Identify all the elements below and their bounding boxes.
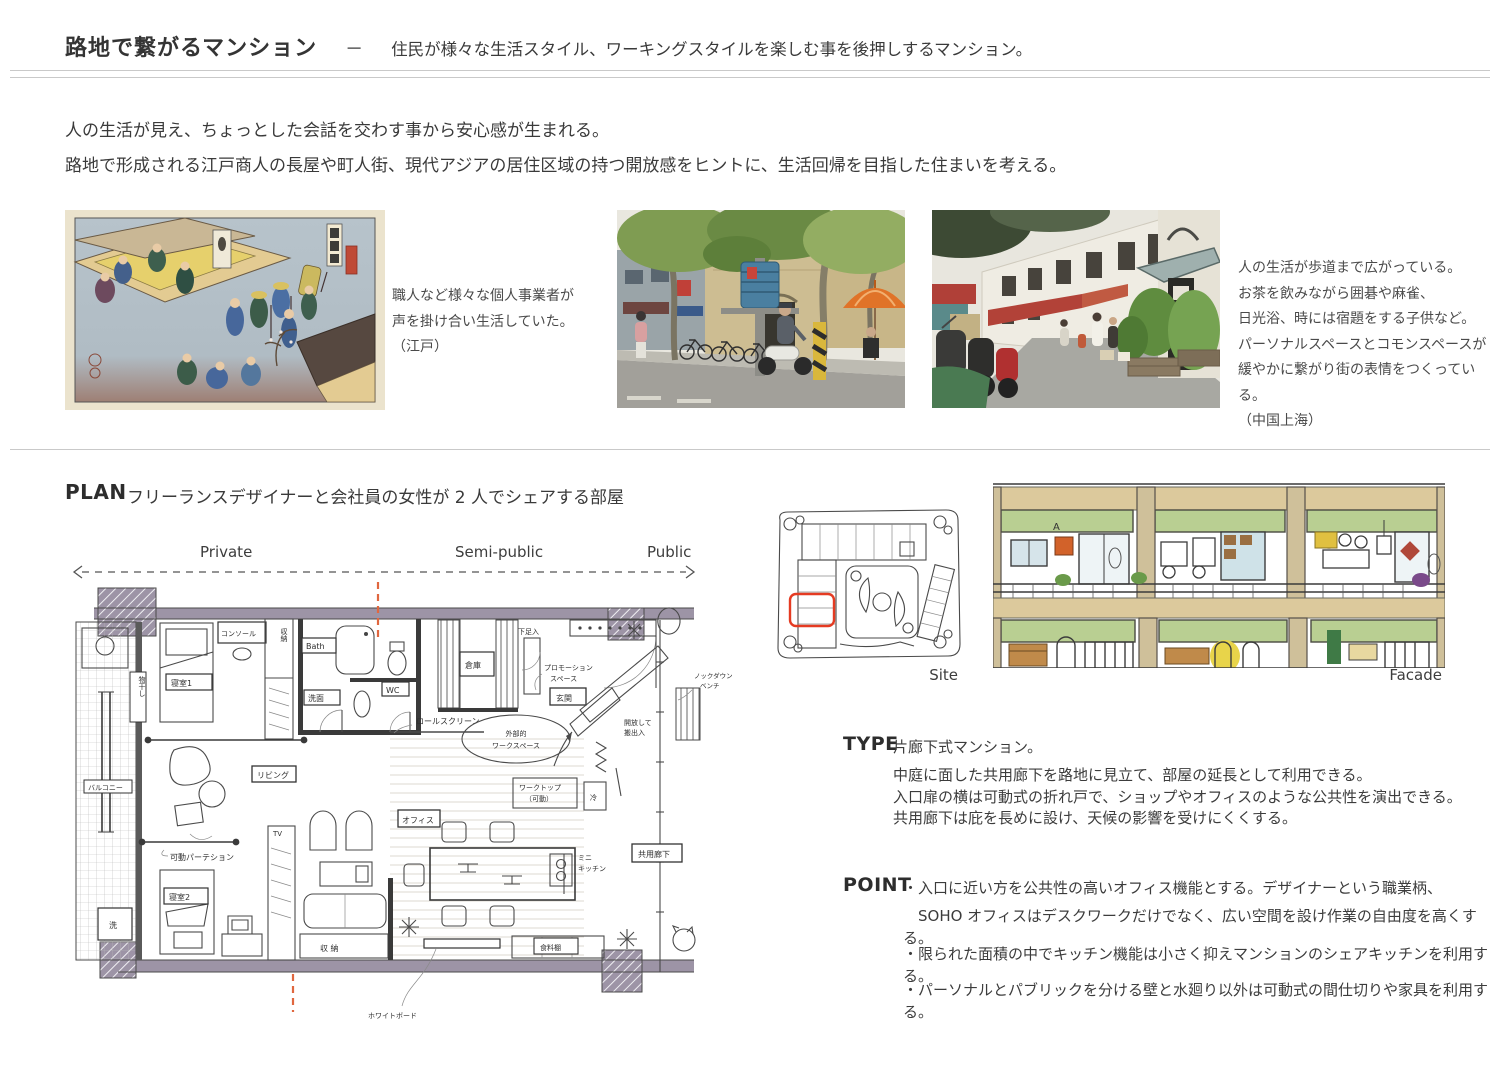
ukiyoe-edo-image — [65, 210, 385, 410]
storeroom-shelf — [438, 620, 460, 708]
point-heading: POINT — [843, 874, 912, 896]
storeroom-shelf — [496, 620, 518, 708]
column — [602, 950, 642, 992]
plan-label-bedroom1: 寝室1 — [171, 678, 192, 688]
armchair — [346, 811, 372, 850]
round-table — [199, 781, 225, 807]
shanghai-caption-line-3: 日光浴、時には宿題をする子供など。 — [1238, 307, 1500, 333]
plan-label-promotion-1: プロモーション — [544, 664, 593, 672]
zone-label-semipublic: Semi-public — [455, 543, 543, 561]
plan-label-partition: 可動パーテション — [170, 853, 234, 862]
type-line-2: 入口扉の横は可動式の折れ戸で、ショップやオフィスのような公共性を演出できる。 — [893, 787, 1462, 809]
type-lines: 中庭に面した共用廊下を路地に見立て、部屋の延長として利用できる。 入口扉の横は可… — [893, 765, 1462, 830]
facade-sketch: A — [993, 480, 1445, 668]
plan-label-bedroom2: 寝室2 — [169, 892, 190, 902]
plan-label-storage: 収 納 — [320, 943, 339, 953]
plan-label-fridge: 冷 — [590, 793, 597, 802]
type-intro: 片廊下式マンション。 — [893, 737, 1042, 759]
plan-label-tv: TV — [272, 830, 282, 838]
svg-text:A: A — [1053, 522, 1060, 533]
site-label: Site — [900, 666, 958, 684]
shanghai-caption-line-5: 緩やかに繋がり街の表情をつくっている。 — [1238, 358, 1500, 409]
plan-label-worktop-1: ワークトップ — [519, 784, 561, 792]
plan-description: フリーランスデザイナーと会社員の女性が 2 人でシェアする部屋 — [127, 483, 624, 508]
site-unit-highlight — [790, 594, 834, 626]
section-rule — [10, 449, 1490, 450]
knockdown-bench — [676, 688, 700, 740]
edo-caption-line-1: 職人など様々な個人事業者が — [392, 284, 574, 310]
plan-label-storeroom: 倉庫 — [465, 660, 481, 670]
whiteboard — [424, 939, 500, 948]
edo-caption-line-2: 声を掛け合い生活していた。 — [392, 310, 574, 336]
plan-label-wc: WC — [386, 686, 400, 695]
plan-label-minikitchen-2: キッチン — [578, 865, 606, 873]
header-rule-1 — [10, 70, 1490, 71]
shanghai-street-photo — [617, 210, 905, 408]
plan-label-office: オフィス — [402, 816, 434, 825]
plan-label-open-1: 開放して — [624, 718, 652, 727]
plan-label-bench-2: ベンチ — [700, 682, 720, 690]
plan-label-wash: 洗 — [109, 920, 117, 930]
shanghai-caption: 人の生活が歩道まで広がっている。 お茶を飲みながら囲碁や麻雀、 日光浴、時には宿… — [1238, 256, 1500, 435]
desk — [222, 934, 262, 956]
intro-text: 人の生活が見え、ちょっとした会話を交わす事から安心感が生まれる。 路地で形成され… — [65, 114, 1066, 184]
plan-label-corridor: 共用廊下 — [638, 849, 670, 859]
plan-label-washstand: 洗面 — [308, 693, 324, 703]
plan-label-drying: 物干し — [138, 675, 146, 697]
shoe-cabinet — [524, 638, 540, 694]
facade-label: Facade — [1380, 666, 1442, 684]
type-line-3: 共用廊下は庇を長めに設け、天候の影響を受けにくくする。 — [893, 808, 1462, 830]
plan-label-living: リビング — [257, 770, 289, 780]
plan-label-ext-ws-1: 外部的 — [506, 729, 527, 738]
plan-label-bath: Bath — [306, 642, 325, 651]
edo-caption: 職人など様々な個人事業者が 声を掛け合い生活していた。 （江戸） — [392, 284, 574, 361]
bed-1 — [160, 623, 213, 722]
point-bullet-3: ・パーソナルとパブリックを分ける壁と水廻り以外は可動式の間仕切りや家具を利用する… — [903, 980, 1500, 1023]
zigzag-mark — [596, 742, 606, 772]
page-subtitle: 住民が様々な生活スタイル、ワーキングスタイルを楽しむ事を後押しするマンション。 — [391, 36, 1032, 60]
plan-heading: PLAN — [65, 480, 127, 504]
point-bullet-1-line-2: SOHO オフィスはデスクワークだけでなく、広い空間を設け作業の自由度を高くする… — [903, 906, 1500, 949]
zone-label-private: Private — [200, 543, 252, 561]
plan-label-ext-ws-2: ワークスペース — [492, 742, 540, 750]
plan-label-whiteboard: ホワイトボード — [368, 1012, 417, 1020]
plan-label-console: コンソール — [221, 630, 256, 638]
bathtub — [336, 626, 374, 674]
shanghai-caption-line-6: （中国上海） — [1238, 409, 1500, 435]
type-heading: TYPE — [843, 733, 899, 755]
zone-gradient-arrow — [72, 564, 696, 580]
shanghai-caption-line-4: パーソナルスペースとコモンスペースが — [1238, 333, 1500, 359]
plan-label-shoebox: 下足入 — [518, 628, 539, 636]
point-bullet-1-line-1: ・入口に近い方を公共性の高いオフィス機能とする。デザイナーという職業柄、 — [903, 878, 1442, 900]
plan-label-open-2: 搬出入 — [624, 728, 645, 737]
edo-caption-line-3: （江戸） — [392, 335, 574, 361]
armchair — [170, 747, 210, 785]
type-line-1: 中庭に面した共用廊下を路地に見立て、部屋の延長として利用できる。 — [893, 765, 1462, 787]
shanghai-caption-line-1: 人の生活が歩道まで広がっている。 — [1238, 256, 1500, 282]
header: 路地で繋がるマンション － 住民が様々な生活スタイル、ワーキングスタイルを楽しむ… — [65, 30, 1032, 62]
plan-label-minikitchen-1: ミニ — [578, 854, 592, 862]
floor-plan-sketch: バルコニー 洗 物干し 寝室1 コンソール 収納 Bath 洗面 — [72, 582, 732, 1047]
alley-photo — [932, 210, 1220, 408]
closet — [265, 619, 293, 739]
plan-label-bench-1: ノックダウン — [694, 671, 732, 680]
toilet — [388, 651, 406, 675]
header-rule-2 — [10, 77, 1490, 78]
tv-storage — [268, 826, 295, 960]
top-wall — [94, 608, 694, 619]
plan-label-balcony: バルコニー — [88, 784, 123, 792]
plan-label-entrance: 玄関 — [556, 693, 572, 703]
site-courtyard — [846, 566, 918, 638]
plan-label-worktop-2: （可動） — [525, 794, 553, 803]
title-dash: － — [345, 35, 363, 61]
plan-label-promotion-2: スペース — [550, 675, 577, 683]
site-building-left — [798, 560, 836, 648]
office-floor — [390, 734, 584, 960]
sink — [354, 691, 370, 717]
presentation-board: 路地で繋がるマンション － 住民が様々な生活スタイル、ワーキングスタイルを楽しむ… — [0, 0, 1500, 1067]
plan-label-rollscreen: ロールスクリーン — [416, 717, 480, 726]
cat-doodle — [673, 929, 695, 951]
page-title: 路地で繋がるマンション — [65, 30, 317, 62]
intro-line-2: 路地で形成される江戸商人の長屋や町人街、現代アジアの居住区域の持つ開放感をヒント… — [65, 149, 1066, 184]
plan-label-closet: 収納 — [280, 628, 288, 643]
intro-line-1: 人の生活が見え、ちょっとした会話を交わす事から安心感が生まれる。 — [65, 114, 1066, 149]
armchair — [310, 811, 336, 850]
shanghai-caption-line-2: お茶を飲みながら囲碁や麻雀、 — [1238, 282, 1500, 308]
plan-label-foodshelf: 食料棚 — [540, 943, 561, 952]
zone-label-public: Public — [647, 543, 691, 561]
site-sketch — [768, 502, 968, 667]
